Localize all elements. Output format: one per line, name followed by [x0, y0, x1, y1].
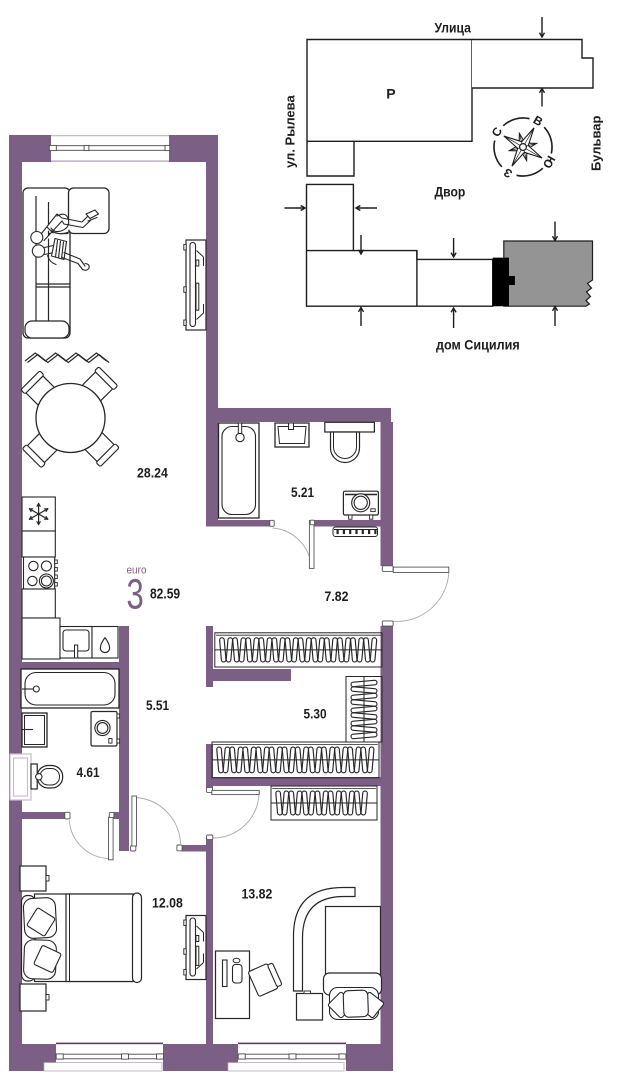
svg-text:Двор: Двор [435, 184, 466, 200]
svg-text:В: В [531, 113, 546, 130]
svg-text:4.61: 4.61 [77, 764, 100, 780]
svg-text:28.24: 28.24 [137, 465, 168, 481]
svg-text:12.08: 12.08 [152, 895, 183, 911]
svg-text:7.82: 7.82 [325, 588, 349, 604]
svg-text:5.21: 5.21 [291, 484, 314, 500]
svg-text:ул. Рылева: ул. Рылева [283, 95, 298, 168]
svg-text:Р: Р [386, 86, 395, 102]
svg-text:3: 3 [127, 569, 144, 617]
svg-text:82.59: 82.59 [150, 585, 180, 601]
svg-text:Бульвар: Бульвар [589, 115, 604, 171]
svg-text:Улица: Улица [435, 20, 472, 36]
svg-text:5.30: 5.30 [304, 706, 327, 722]
svg-text:С: С [489, 124, 506, 139]
svg-text:5.51: 5.51 [146, 697, 169, 713]
svg-text:дом Сицилия: дом Сицилия [436, 337, 520, 353]
svg-text:З: З [501, 165, 515, 181]
svg-text:13.82: 13.82 [242, 886, 273, 902]
